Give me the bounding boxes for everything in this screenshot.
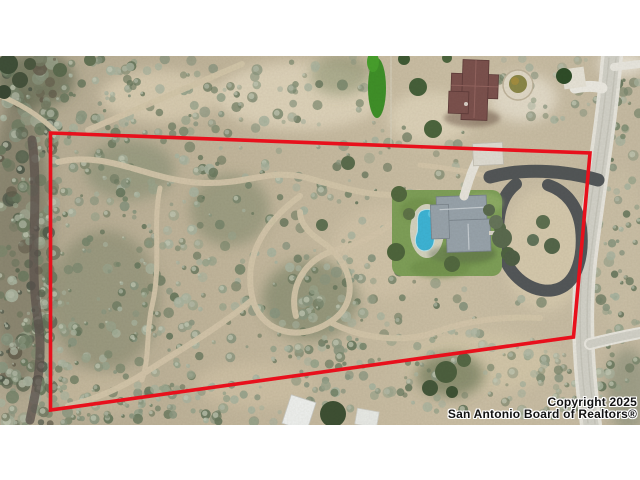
listing-photo-frame: Copyright 2025 San Antonio Board of Real… — [0, 0, 640, 480]
aerial-photo: Copyright 2025 San Antonio Board of Real… — [0, 56, 640, 425]
copyright-line2: San Antonio Board of Realtors® — [448, 408, 637, 420]
letterbox-bottom — [0, 425, 640, 480]
aerial-photo-canvas — [0, 56, 640, 425]
copyright-watermark: Copyright 2025 San Antonio Board of Real… — [448, 396, 637, 420]
grain-overlay — [0, 56, 640, 425]
letterbox-top — [0, 0, 640, 56]
